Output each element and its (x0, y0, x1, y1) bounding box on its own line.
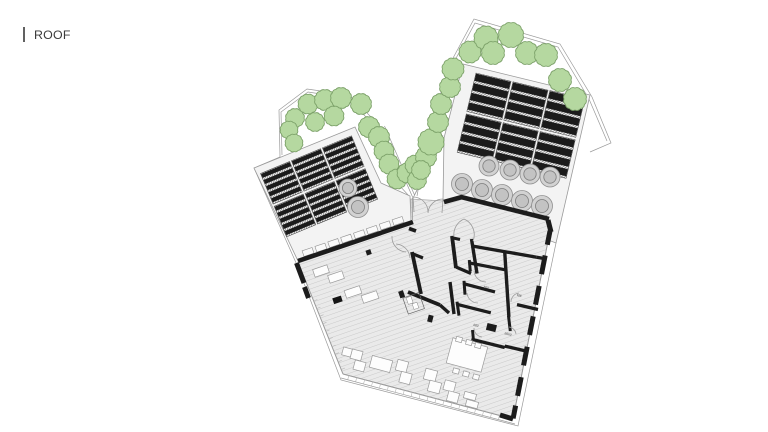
svg-text:ROOF: ROOF (34, 28, 71, 42)
